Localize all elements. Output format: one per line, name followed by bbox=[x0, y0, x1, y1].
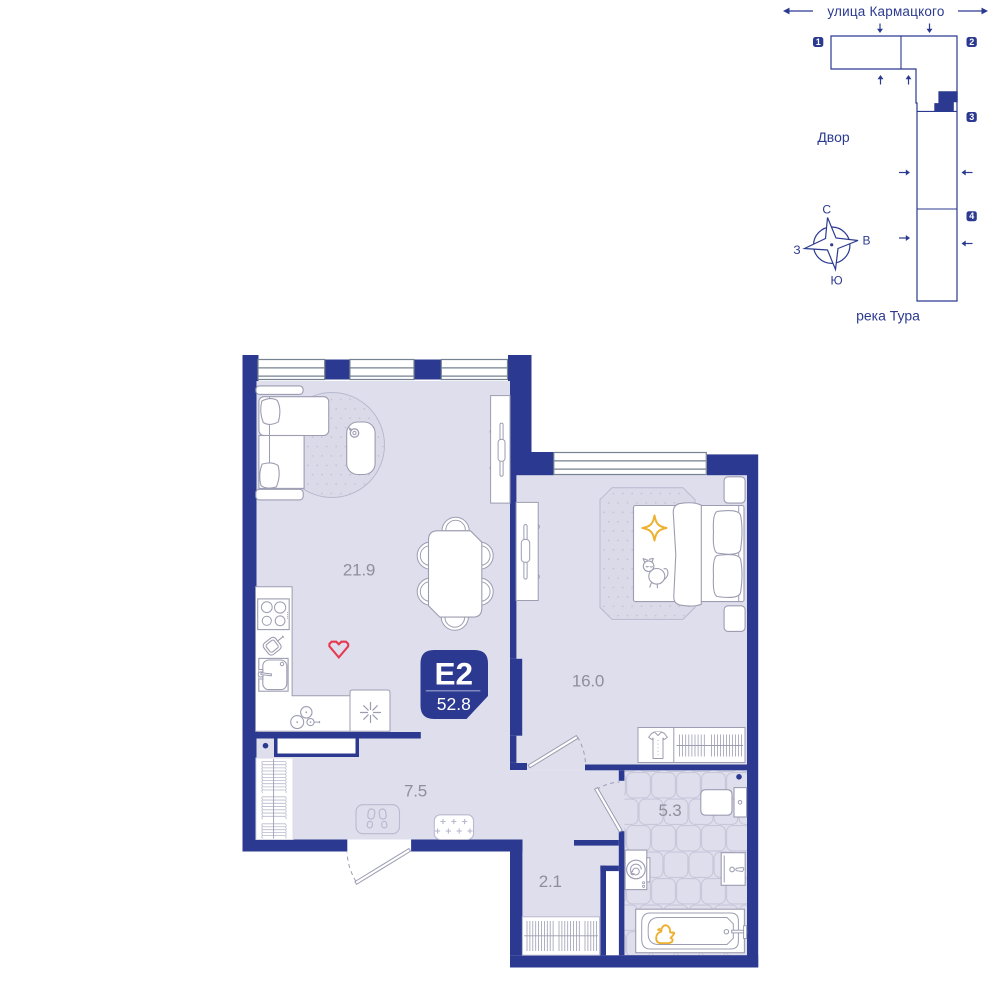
svg-text:Двор: Двор bbox=[817, 129, 850, 145]
svg-text:С: С bbox=[822, 203, 831, 217]
svg-text:5.3: 5.3 bbox=[658, 801, 681, 820]
svg-text:4: 4 bbox=[969, 211, 974, 221]
svg-text:З: З bbox=[793, 243, 800, 257]
svg-text:3: 3 bbox=[969, 112, 974, 122]
svg-text:Е2: Е2 bbox=[435, 656, 474, 692]
svg-text:21.9: 21.9 bbox=[343, 561, 375, 580]
svg-text:52.8: 52.8 bbox=[437, 694, 471, 714]
svg-text:река Тура: река Тура bbox=[856, 308, 920, 324]
svg-text:улица Кармацкого: улица Кармацкого bbox=[827, 4, 944, 19]
svg-text:16.0: 16.0 bbox=[572, 672, 604, 691]
svg-text:2.1: 2.1 bbox=[539, 872, 562, 891]
svg-text:Ю: Ю bbox=[830, 274, 842, 288]
svg-text:7.5: 7.5 bbox=[404, 782, 427, 801]
svg-text:2: 2 bbox=[969, 37, 974, 47]
svg-text:1: 1 bbox=[816, 37, 821, 47]
svg-text:В: В bbox=[862, 234, 870, 248]
